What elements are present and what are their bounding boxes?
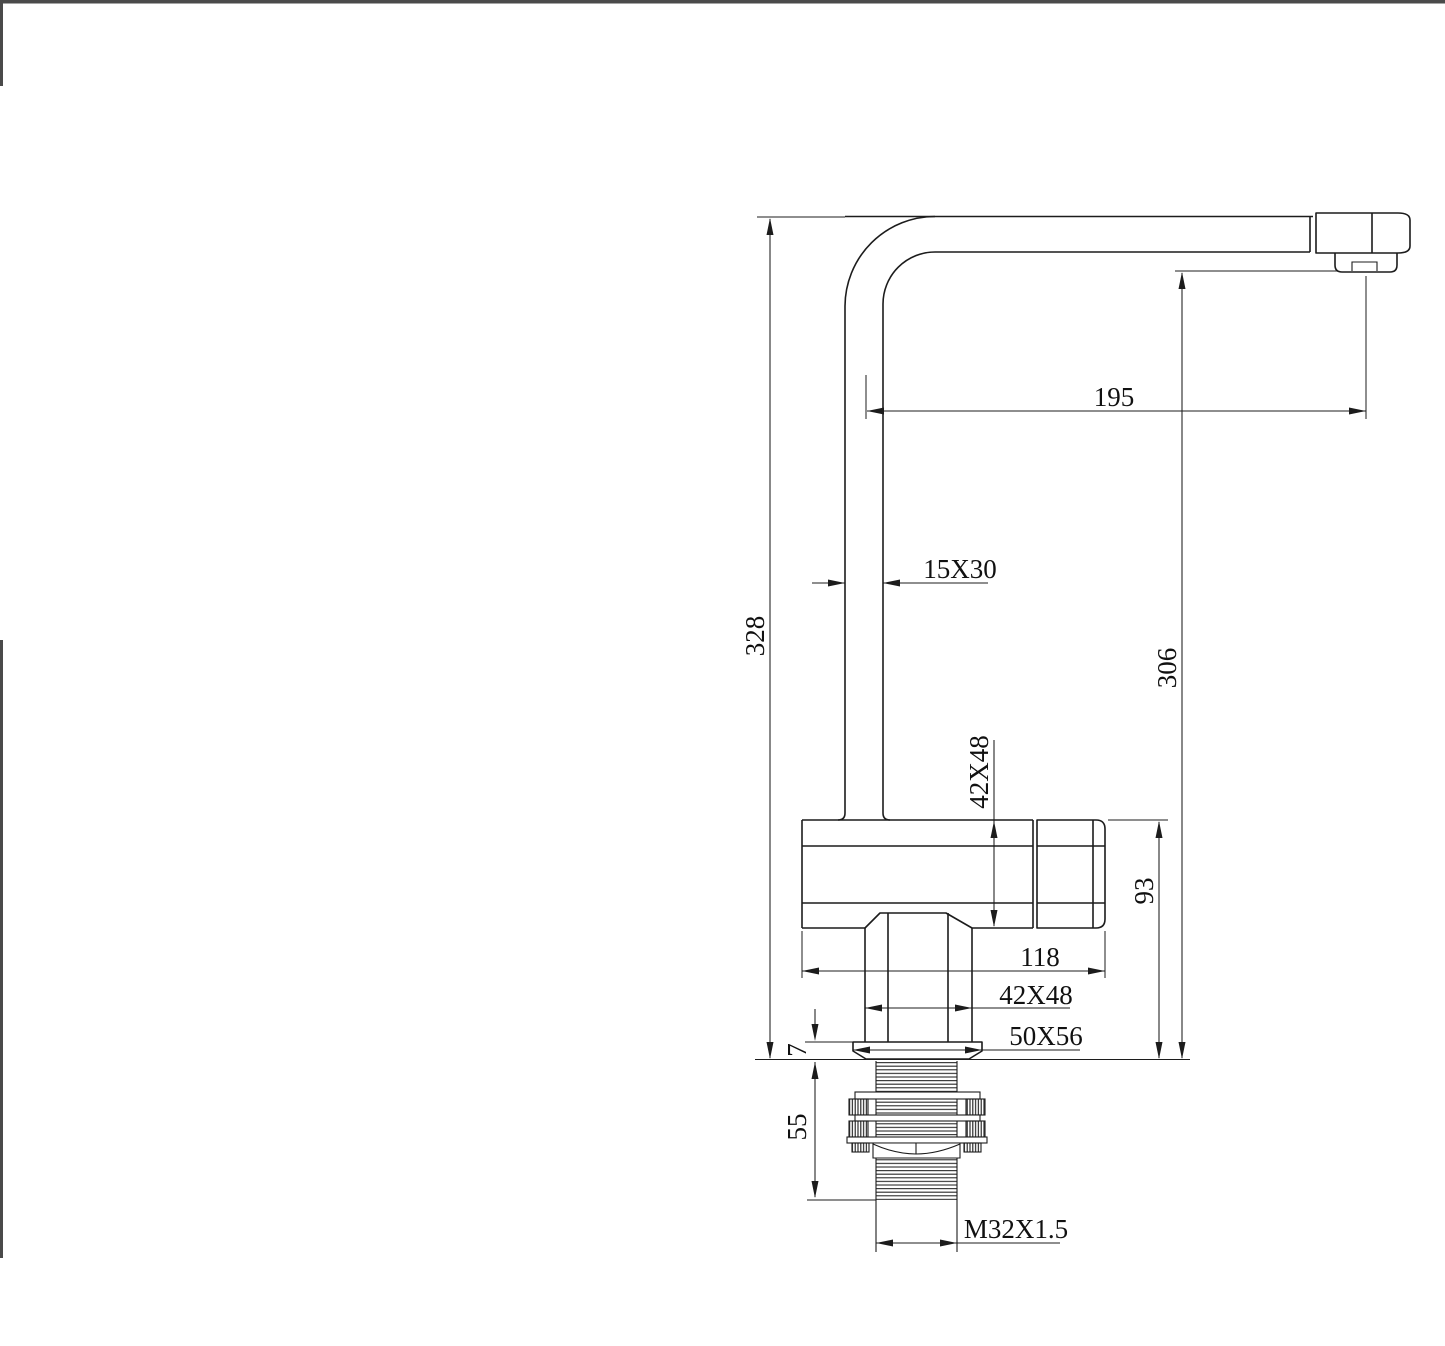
dim-label-body-section: 42X48: [964, 735, 994, 809]
dim-label-body-length: 118: [1020, 942, 1060, 972]
page-border: [0, 0, 1445, 1258]
dim-body-height: 93: [1108, 820, 1168, 1059]
drawing-page: 328 306 93 195: [0, 0, 1445, 1346]
page-border-top: [0, 0, 1445, 4]
dim-label-spout-reach: 195: [1094, 382, 1135, 412]
stem: [865, 913, 972, 1042]
dim-overall-height: 328: [740, 218, 774, 1059]
dim-spout-tube-section: 15X30: [812, 554, 997, 587]
dim-flange-thickness: 7: [782, 1009, 853, 1079]
page-border-left-upper: [0, 0, 3, 86]
dim-label-outlet-height: 306: [1152, 648, 1182, 689]
dim-label-stem-section: 42X48: [999, 980, 1073, 1010]
dim-body-section: 42X48: [964, 735, 998, 927]
spout-end-cap: [1316, 213, 1410, 253]
dim-thread-spec: M32X1.5: [876, 1214, 1068, 1247]
dim-label-shank-length: 55: [782, 1114, 812, 1141]
spout-and-riser: [757, 217, 1313, 821]
dim-label-overall-height: 328: [740, 616, 770, 657]
dim-label-flange-thickness: 7: [782, 1043, 812, 1057]
dim-label-spout-tube-section: 15X30: [923, 554, 997, 584]
dimensions: 328 306 93 195: [740, 218, 1366, 1247]
dim-outlet-height: 306: [1152, 271, 1338, 1059]
hex-nut: [873, 1143, 960, 1158]
body-block: [802, 820, 1033, 928]
faucet-technical-drawing: 328 306 93 195: [0, 0, 1445, 1346]
dim-label-base-plate: 50X56: [1009, 1021, 1083, 1051]
dim-label-body-height: 93: [1129, 878, 1159, 905]
page-border-left-lower: [0, 640, 3, 1258]
dim-stem-section: 42X48: [865, 980, 1073, 1012]
dim-label-thread-spec: M32X1.5: [964, 1214, 1068, 1244]
dim-spout-reach: 195: [866, 276, 1366, 419]
faucet-outline: [755, 213, 1410, 1252]
threaded-shank: [876, 1061, 957, 1200]
handle-block: [1037, 820, 1105, 928]
aerator: [1335, 253, 1397, 272]
dim-body-length: 118: [802, 931, 1105, 978]
